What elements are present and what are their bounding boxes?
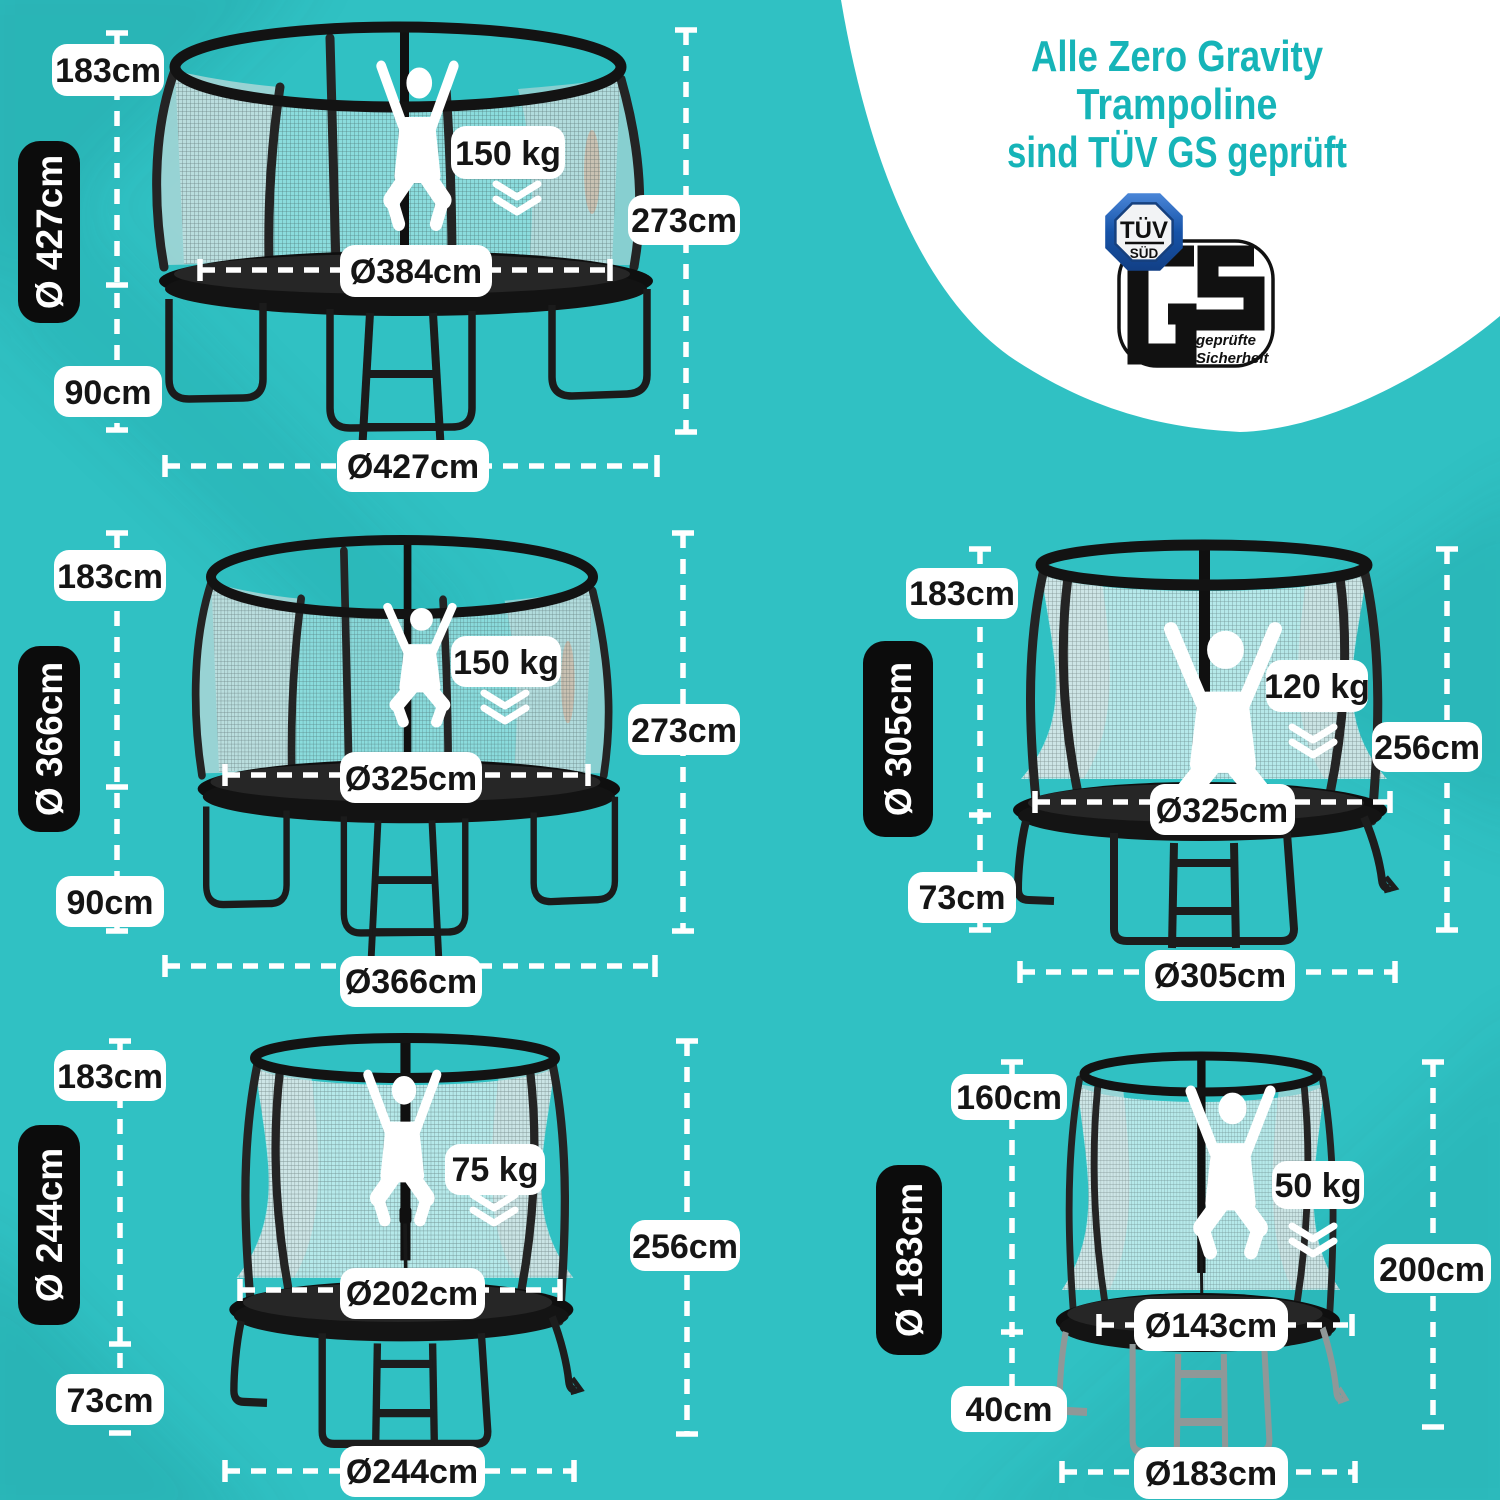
svg-text:Ø183cm: Ø183cm: [1145, 1455, 1277, 1493]
svg-text:Ø305cm: Ø305cm: [1154, 957, 1286, 995]
svg-text:Ø427cm: Ø427cm: [347, 448, 479, 486]
svg-text:90cm: 90cm: [65, 374, 152, 412]
svg-text:183cm: 183cm: [909, 575, 1015, 613]
svg-text:120 kg: 120 kg: [1264, 668, 1370, 706]
svg-text:Alle Zero Gravity: Alle Zero Gravity: [1031, 32, 1323, 81]
svg-text:183cm: 183cm: [57, 1058, 163, 1096]
svg-text:Ø 305cm: Ø 305cm: [878, 662, 919, 816]
svg-text:Ø366cm: Ø366cm: [345, 963, 477, 1001]
svg-text:sind TÜV GS geprüft: sind TÜV GS geprüft: [1007, 128, 1347, 177]
svg-text:geprüfte: geprüfte: [1195, 332, 1256, 349]
svg-text:150 kg: 150 kg: [453, 644, 559, 682]
svg-text:Ø143cm: Ø143cm: [1145, 1307, 1277, 1345]
svg-text:Ø325cm: Ø325cm: [1156, 792, 1288, 830]
svg-text:50 kg: 50 kg: [1275, 1167, 1362, 1205]
svg-text:Ø 183cm: Ø 183cm: [889, 1183, 930, 1337]
svg-text:Sicherheit: Sicherheit: [1196, 350, 1270, 367]
svg-text:273cm: 273cm: [631, 712, 737, 750]
svg-text:200cm: 200cm: [1379, 1251, 1485, 1289]
svg-text:Ø 244cm: Ø 244cm: [29, 1148, 70, 1302]
svg-text:75 kg: 75 kg: [452, 1151, 539, 1189]
svg-text:150 kg: 150 kg: [455, 135, 561, 173]
svg-text:256cm: 256cm: [1374, 729, 1480, 767]
svg-text:Ø202cm: Ø202cm: [346, 1275, 478, 1313]
svg-text:Ø325cm: Ø325cm: [345, 760, 477, 798]
svg-text:160cm: 160cm: [956, 1079, 1062, 1117]
svg-text:73cm: 73cm: [919, 879, 1006, 917]
svg-text:TÜV: TÜV: [1120, 217, 1168, 244]
svg-text:Ø 366cm: Ø 366cm: [29, 662, 70, 816]
svg-text:90cm: 90cm: [67, 884, 154, 922]
svg-text:256cm: 256cm: [632, 1228, 738, 1266]
svg-text:40cm: 40cm: [966, 1391, 1053, 1429]
svg-text:Ø384cm: Ø384cm: [350, 253, 482, 291]
svg-text:183cm: 183cm: [57, 558, 163, 596]
svg-text:Ø 427cm: Ø 427cm: [29, 155, 70, 309]
svg-text:Ø244cm: Ø244cm: [346, 1453, 478, 1491]
svg-text:73cm: 73cm: [67, 1382, 154, 1420]
svg-text:273cm: 273cm: [631, 202, 737, 240]
svg-text:Trampoline: Trampoline: [1077, 80, 1278, 129]
svg-text:183cm: 183cm: [55, 52, 161, 90]
svg-text:SÜD: SÜD: [1130, 246, 1159, 261]
